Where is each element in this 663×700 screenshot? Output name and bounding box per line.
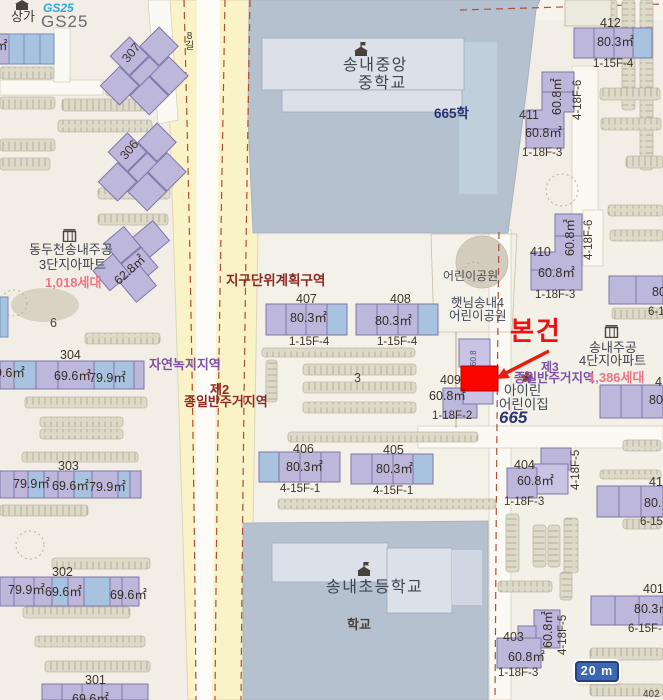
school-icon — [356, 562, 372, 576]
complex4-name-line2: 4단지아파트 — [579, 354, 646, 368]
street-label-4-18f-5: 4-18F-5 — [570, 450, 582, 490]
building-403-floors: 1-18F-3 — [498, 667, 538, 679]
parking-strip — [600, 88, 660, 100]
street-label-4-18f-5b: 4-18F-5 — [557, 615, 569, 655]
building-406-floors: 4-15F-1 — [280, 483, 320, 495]
building-304-number: 304 — [60, 349, 81, 362]
building-408-floors: 1-15F-4 — [377, 336, 417, 348]
parking-strip — [303, 402, 416, 413]
parking-strip — [506, 514, 519, 572]
complex3-name-line2: 3단지아파트 — [39, 258, 106, 272]
parking-strip — [640, 0, 653, 170]
parking-strip — [0, 505, 88, 516]
parking-strip — [0, 67, 54, 79]
building-405-area: 80.3㎡ — [376, 463, 413, 476]
parking-strip — [22, 452, 138, 462]
building-edge-low-number: 41 — [649, 476, 663, 489]
apartment-icon — [62, 229, 77, 242]
parking-strip — [0, 158, 50, 170]
building-412-floors: 1-15F-4 — [593, 58, 633, 70]
street-label-4-18f-6: 4-18F-6 — [572, 80, 584, 120]
building-404-area: 60.8㎡ — [517, 475, 554, 488]
building-302-area1: 79.9㎡ — [8, 584, 45, 597]
building-403-area: 60.8㎡ — [508, 651, 545, 664]
parking-strip — [278, 499, 496, 509]
zone-res3-line2: 종일반주거지역 — [514, 372, 595, 385]
parking-strip — [262, 348, 415, 357]
building-405-number: 405 — [383, 444, 404, 457]
building-unit — [9, 34, 54, 64]
building-303-area2: 69.6㎡ — [52, 480, 89, 493]
building-unit-blue — [84, 577, 110, 606]
parking-strip — [85, 333, 160, 344]
building-unit-blue — [327, 304, 347, 335]
building-unit — [463, 390, 493, 404]
lot-3-label: 3 — [354, 372, 361, 385]
building-409-area: 60.8㎡ — [429, 390, 466, 403]
lot-6-label: 6 — [50, 317, 57, 330]
middle-school-lot-label: 665학 — [434, 107, 469, 121]
building-402-number: 402 — [643, 690, 660, 700]
building-403-number: 403 — [503, 631, 524, 644]
building-406-number: 406 — [293, 443, 314, 456]
building-edge-low-area: 80. — [644, 497, 661, 510]
shop-road-2 — [54, 28, 70, 82]
sun-park-line2: 어린이공원 — [449, 310, 507, 323]
complex3-households: 1,018세대 — [45, 276, 101, 290]
building-303-number: 303 — [58, 460, 79, 473]
building-411-area-vertical: 60.8㎡ — [551, 78, 564, 115]
parking-strip — [564, 518, 578, 573]
parking-strip — [23, 607, 130, 618]
parking-strip — [601, 118, 661, 130]
building-407-area: 80.3㎡ — [290, 312, 327, 325]
building-408-number: 408 — [390, 293, 411, 306]
zone-district-plan-label: 지구단위계획구역 — [226, 274, 325, 288]
building-304-area2: 69.6㎡ — [54, 370, 91, 383]
middle-school-name-line1: 송내중앙 — [343, 58, 408, 75]
parking-strip — [25, 397, 147, 408]
building-edge-mid-area: 80 — [649, 394, 663, 407]
building-301-area1: 69.6㎡ — [72, 693, 109, 700]
building-unit — [0, 297, 8, 337]
parking-strip — [498, 581, 552, 592]
building-411-number: 411 — [519, 109, 539, 122]
building-401-number: 401 — [643, 583, 663, 596]
building-407-number: 407 — [296, 293, 317, 306]
middle-school-name-line2: 중학교 — [358, 76, 407, 93]
parking-strip — [35, 636, 145, 647]
building-303-area1: 79.9㎡ — [13, 478, 50, 491]
building-412-number: 412 — [600, 17, 621, 30]
elementary-school-annex — [452, 550, 482, 605]
building-302-number: 302 — [52, 566, 73, 579]
parking-strip — [560, 572, 572, 600]
building-edge-top-area: 80 — [652, 286, 663, 299]
zone-green-label: 자연녹지지역 — [149, 358, 221, 372]
street-label-8gil: 8길 — [183, 32, 196, 52]
school-icon — [353, 42, 369, 56]
building-408-area: 80.3㎡ — [375, 315, 412, 328]
parking-strip — [590, 648, 663, 660]
building-unit-blue — [418, 304, 438, 335]
parking-strip — [626, 156, 663, 168]
building-edge-low-floors: 6-15 — [640, 516, 663, 528]
scale-bar: 20 m — [575, 661, 619, 682]
building-302-area2: 69.6㎡ — [45, 586, 82, 599]
lot-665-label: 665 — [499, 409, 527, 427]
parking-strip — [623, 440, 661, 451]
building-edge-top-floors: 6-1 — [648, 306, 663, 318]
gs25-store-label: GS25 — [41, 13, 88, 31]
street-label-4-18f-6b: 4-18F-6 — [583, 220, 595, 260]
building-409-number: 409 — [440, 374, 461, 387]
subject-box — [461, 366, 498, 391]
parking-strip — [610, 230, 663, 241]
parking-strip — [45, 661, 150, 672]
park-label: 어린이공원 — [443, 270, 498, 283]
building-404-number: 404 — [514, 459, 535, 472]
shop-label: 상가 — [11, 10, 35, 24]
building-304-area3: 79.9㎡ — [89, 372, 126, 385]
parking-strip — [533, 525, 546, 567]
building-edge-left-area: ㎡ — [0, 40, 8, 53]
building-411-floors: 1-18F-3 — [522, 147, 562, 159]
elementary-school-name: 송내초등학교 — [326, 580, 423, 597]
building-405-floors: 4-15F-1 — [373, 485, 413, 497]
parking-strip — [548, 525, 560, 567]
building-403-area-vertical: 60.8㎡ — [542, 611, 555, 648]
cadastral-map: 상가 GS25 GS25 307 306 8길 ㎡ 송내중앙 중학교 665학 … — [0, 0, 663, 700]
parking-strip — [608, 205, 663, 216]
building-401-floors: 6-15F- — [628, 623, 662, 635]
building-unit-blue — [633, 28, 652, 58]
building-410-floors: 1-18F-3 — [535, 289, 575, 301]
building-411-area: 60.8㎡ — [525, 127, 562, 140]
building-412-area: 80.3㎡ — [597, 36, 634, 49]
building-409-area-vertical: 60.8 — [470, 350, 478, 366]
building-303-area3: 79.9㎡ — [89, 481, 126, 494]
parking-strip — [98, 214, 168, 225]
parking-strip — [0, 139, 55, 151]
complex4-households: 1,386세대 — [588, 371, 644, 385]
parking-strip — [40, 429, 123, 439]
building-302-area3: 69.6㎡ — [110, 589, 147, 602]
parking-strip — [40, 417, 123, 427]
playground-oval-left — [11, 288, 79, 322]
parking-strip — [0, 97, 55, 109]
building-301-number: 301 — [85, 674, 106, 687]
complex3-name-line1: 동두천송내주공 — [29, 243, 113, 257]
building-unit-blue — [259, 452, 279, 482]
building-edge-mid-number: 4 — [655, 376, 662, 389]
building-401-area: 80.3㎡ — [634, 603, 663, 616]
subject-label: 본건 — [510, 318, 562, 345]
building-unit-blue — [413, 454, 433, 484]
building-410-number: 410 — [530, 246, 551, 259]
elementary-school-lot-label: 학교 — [347, 618, 371, 632]
building-410-area: 60.8㎡ — [538, 267, 575, 280]
building-409-floors: 1-18F-2 — [432, 410, 472, 422]
parking-strip — [288, 432, 478, 442]
building-406-area: 80.3㎡ — [286, 461, 323, 474]
apartment-icon — [604, 325, 619, 338]
zone-res2-line2: 종일반주거지역 — [184, 395, 268, 409]
building-304-area1: 69.6㎡ — [0, 367, 25, 380]
building-410-area-vertical: 60.8㎡ — [564, 219, 577, 256]
building-407-floors: 1-15F-4 — [289, 336, 329, 348]
building-404-floors: 1-18F-3 — [504, 496, 544, 508]
shop-road — [0, 80, 103, 95]
parking-strip — [58, 120, 152, 132]
